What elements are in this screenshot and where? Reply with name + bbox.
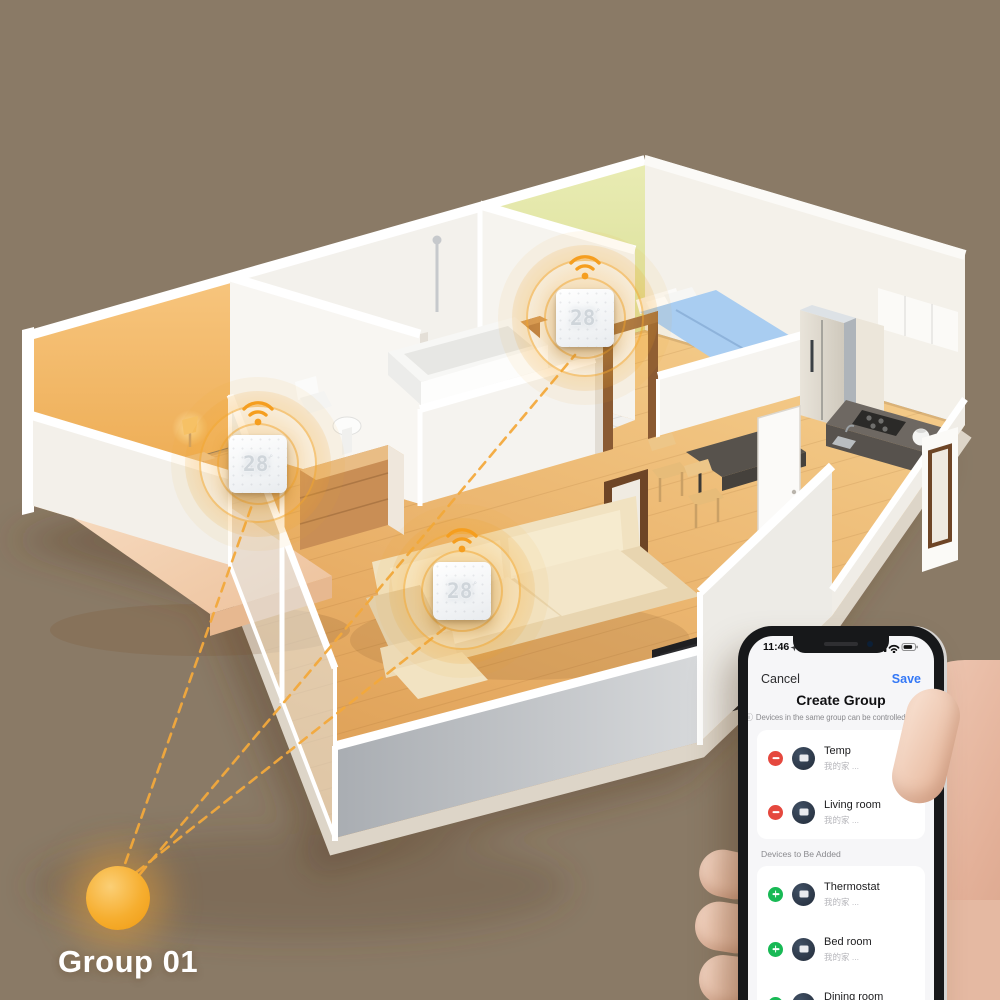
thermostat-temp: 28 [570,306,595,330]
thermostat-device-icon [792,993,815,1000]
add-device-button[interactable] [768,942,783,957]
remove-device-button[interactable] [768,805,783,820]
device-row[interactable]: Living room 我的家 ... [768,797,914,827]
device-name: Bed room [824,936,872,948]
degree-mark: ° [596,307,600,317]
thermostat-device: 28 ° [433,562,491,620]
info-icon: ⓘ [748,714,753,722]
wifi-icon [238,399,278,427]
device-name: Thermostat [824,881,880,893]
group-node-icon [86,866,150,930]
remove-device-button[interactable] [768,751,783,766]
phone-screen: 11:46 ➤ [748,636,934,1000]
thermostat-device: 28 ° [556,289,614,347]
add-device-button[interactable] [768,997,783,1000]
cancel-button[interactable]: Cancel [761,672,800,686]
thermostat-bedroom-left: 28 ° [183,389,333,539]
thermostat-temp: 28 [243,452,268,476]
thermostat-device-icon [792,801,815,824]
device-name: Temp [824,745,859,757]
device-subtitle: 我的家 ... [824,896,880,908]
thermostat-device-icon [792,938,815,961]
device-row[interactable]: Bed room 我的家 ... [768,934,914,964]
device-name: Living room [824,799,881,811]
speaker-slot [824,642,858,646]
thermostat-device: 28 ° [229,435,287,493]
page-title: Create Group [748,692,934,708]
device-subtitle: 我的家 ... [824,814,881,826]
nav-row: Cancel Save [748,672,934,686]
wifi-status-icon [890,646,899,650]
wifi-icon [442,526,482,554]
smartphone: 11:46 ➤ [738,626,944,1000]
thermostat-device-icon [792,883,815,906]
marketing-scene: 28 ° 28 ° 28 ° Group 01 [0,0,1000,1000]
front-camera [867,641,873,647]
device-subtitle: 我的家 ... [824,760,859,772]
device-row[interactable]: Thermostat 我的家 ... [768,879,914,909]
thermostat-temp: 28 [447,579,472,603]
thermostat-bedroom-right: 28 ° [510,243,660,393]
device-row[interactable]: Dining room 我的家 ... [768,989,914,1000]
section-label: Devices to Be Added [761,849,841,859]
degree-mark: ° [473,580,477,590]
thermostat-device-icon [792,747,815,770]
thermostat-living-room: 28 ° [387,516,537,666]
group-label: Group 01 [58,944,198,980]
degree-mark: ° [269,453,273,463]
devices-to-add-card: Thermostat 我的家 ... Bed room 我的家 ... [757,866,925,1000]
wifi-icon [565,253,605,281]
device-subtitle: 我的家 ... [824,951,872,963]
save-button[interactable]: Save [892,672,921,686]
phone-notch [793,636,889,653]
battery-icon [902,644,918,651]
device-name: Dining room [824,991,883,1000]
add-device-button[interactable] [768,887,783,902]
